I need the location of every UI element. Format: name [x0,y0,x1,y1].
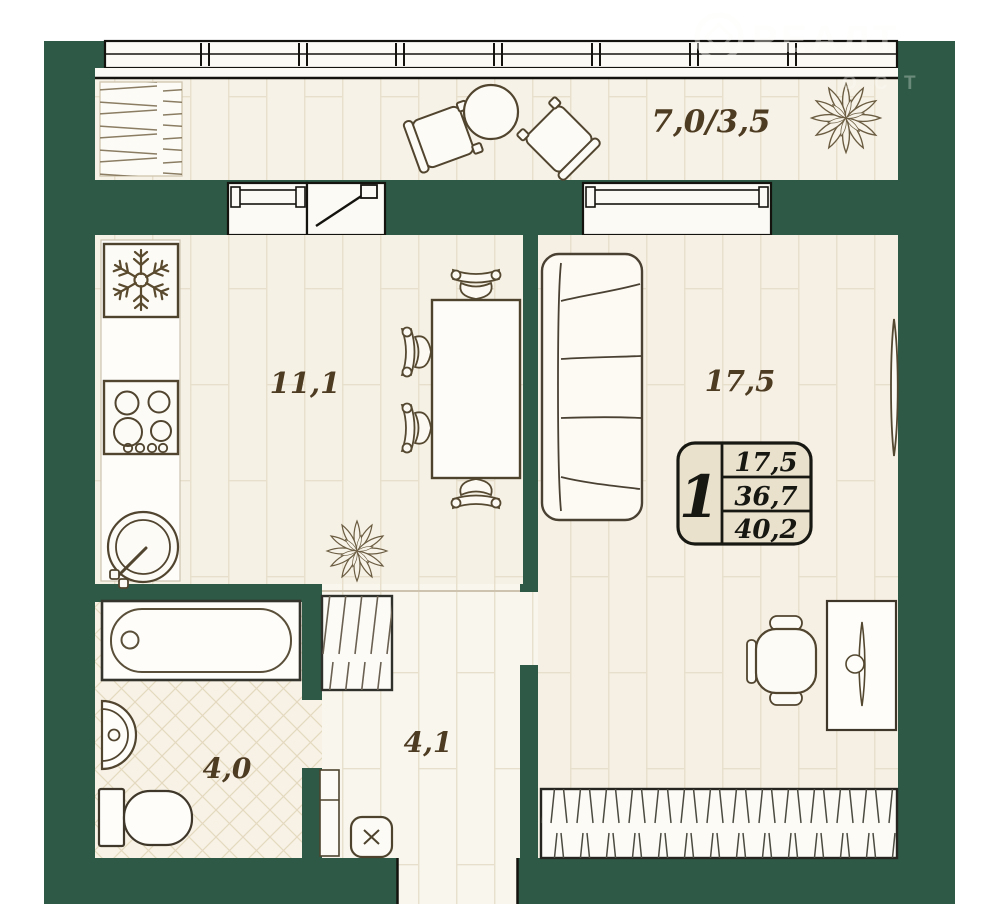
desk [827,601,896,730]
balcony-label: 7,0/3,5 [651,104,770,140]
kitchen-label: 11,1 [270,366,341,400]
pouf [351,817,392,857]
watermark-subtext: ОСТ [842,73,933,94]
stove [104,381,178,454]
kitchen-window [228,183,307,235]
floor-plan-page: 7,0/3,5 [0,0,997,910]
balcony: 7,0/3,5 [95,41,898,181]
dining-table [432,300,520,478]
wardrobe [541,789,897,858]
hallway: 4,1 [320,584,520,904]
entrance-opening [397,858,518,904]
living-label: 17,5 [705,364,776,398]
hallway-label: 4,1 [404,726,453,759]
shoe-cabinet [320,770,339,856]
info-total-area: 40,2 [734,515,797,545]
balcony-bench [100,82,182,176]
floor-plan-svg: 7,0/3,5 [0,0,997,910]
info-rooms-count: 1 [679,463,719,531]
tv [891,319,898,456]
bathroom: 4,0 [95,601,322,858]
balcony-door [307,183,385,235]
fridge [104,244,178,317]
bathroom-label: 4,0 [203,752,252,785]
bathtub [102,601,300,680]
info-usable-area: 36,7 [734,482,797,512]
living-room: 17,5 1 17,5 36,7 40,2 [520,235,898,858]
hallway-closet [322,596,392,690]
sofa [542,254,642,520]
watermark-text: РЕАЛТ [752,19,900,61]
info-living-area: 17,5 [734,448,797,478]
living-window [583,183,771,235]
balcony-table [464,85,518,139]
toilet [99,789,192,846]
kitchen: 11,1 [95,235,523,588]
info-box: 1 17,5 36,7 40,2 [678,443,811,545]
